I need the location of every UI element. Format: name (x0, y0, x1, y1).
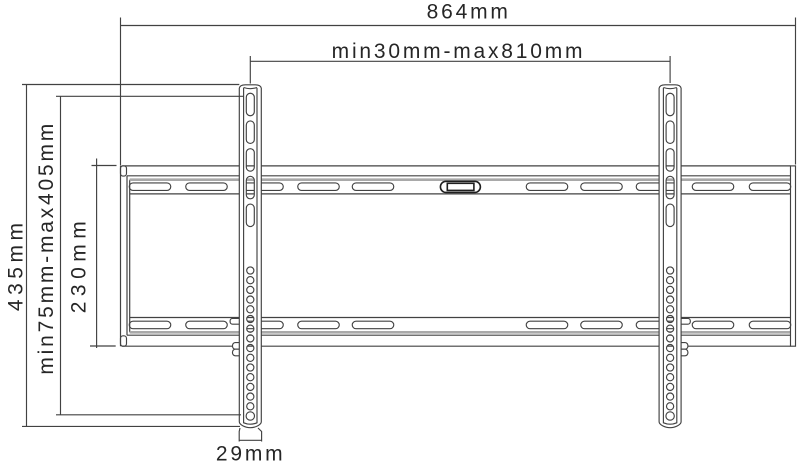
svg-text:min75mm-max405mm: min75mm-max405mm (35, 121, 58, 375)
svg-text:min30mm-max810mm: min30mm-max810mm (332, 40, 586, 63)
svg-text:435mm: 435mm (5, 219, 28, 312)
svg-text:230mm: 230mm (68, 216, 91, 314)
svg-text:864mm: 864mm (427, 0, 511, 23)
svg-text:29mm: 29mm (216, 443, 286, 466)
